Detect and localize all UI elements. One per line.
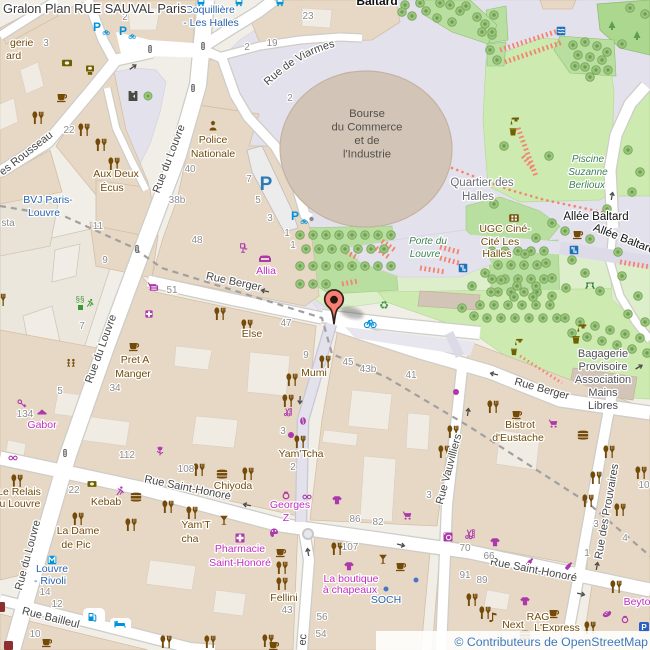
svg-text:Z: Z	[283, 512, 290, 524]
svg-text:82: 82	[372, 517, 384, 528]
svg-text:UGC Ciné-: UGC Ciné-	[479, 223, 531, 235]
svg-text:23: 23	[302, 11, 314, 22]
svg-text:ec: ec	[297, 633, 310, 646]
svg-text:14: 14	[39, 587, 51, 598]
svg-text:5: 5	[255, 195, 261, 206]
svg-text:Chiyoda: Chiyoda	[214, 480, 253, 492]
svg-text:22: 22	[63, 125, 75, 136]
svg-text:Suzanne: Suzanne	[568, 167, 608, 178]
svg-text:Coquillière: Coquillière	[185, 4, 235, 16]
svg-text:Next: Next	[502, 619, 524, 631]
svg-text:P: P	[641, 623, 647, 632]
svg-text:107: 107	[342, 542, 359, 553]
svg-text:3: 3	[267, 213, 273, 224]
svg-text:45: 45	[342, 357, 354, 368]
svg-text:Saint-Honoré: Saint-Honoré	[209, 557, 271, 569]
svg-text:Manger: Manger	[115, 368, 151, 380]
svg-text:Bistrot: Bistrot	[505, 419, 535, 431]
svg-text:Else: Else	[242, 328, 263, 340]
svg-text:2: 2	[287, 93, 293, 104]
svg-text:70: 70	[459, 543, 471, 554]
svg-text:- Rivoli: - Rivoli	[34, 575, 66, 587]
svg-text:54: 54	[315, 629, 327, 640]
svg-text:48: 48	[191, 235, 203, 246]
svg-text:86: 86	[349, 514, 361, 525]
svg-text:Libres: Libres	[588, 400, 618, 412]
svg-text:Aux Deux: Aux Deux	[93, 168, 139, 180]
svg-text:108: 108	[178, 464, 195, 475]
svg-text:Yam'Tcha: Yam'Tcha	[279, 448, 324, 460]
svg-text:Association: Association	[575, 374, 631, 386]
svg-text:P: P	[119, 24, 127, 38]
svg-text:47: 47	[280, 318, 292, 329]
svg-text:Quartier des: Quartier des	[450, 177, 514, 189]
svg-text:43: 43	[281, 605, 293, 616]
svg-text:12: 12	[51, 599, 63, 610]
svg-text:Pret A: Pret A	[121, 354, 150, 366]
svg-text:l'Industrie: l'Industrie	[343, 149, 391, 161]
svg-text:cha: cha	[182, 533, 199, 545]
svg-text:Piscine: Piscine	[572, 154, 605, 165]
svg-text:22: 22	[68, 485, 80, 496]
svg-text:Provisoire: Provisoire	[579, 361, 628, 373]
svg-text:Gabor: Gabor	[27, 419, 57, 431]
svg-text:à chapeaux: à chapeaux	[323, 584, 378, 596]
svg-text:Bourse: Bourse	[349, 108, 385, 120]
svg-text:40: 40	[184, 164, 196, 175]
svg-text:1: 1	[284, 228, 290, 239]
svg-text:Louvre: Louvre	[410, 249, 441, 260]
svg-text:Bagagerie: Bagagerie	[578, 348, 628, 360]
svg-text:sta: sta	[1, 218, 15, 229]
svg-text:3: 3	[593, 519, 599, 530]
svg-text:Porte du: Porte du	[409, 236, 447, 247]
svg-text:Halles: Halles	[482, 248, 511, 260]
svg-text:1: 1	[290, 240, 296, 251]
svg-text:de Pic: de Pic	[61, 539, 90, 551]
svg-text:Pharmacie: Pharmacie	[215, 543, 265, 555]
svg-text:Yam'T: Yam'T	[181, 519, 211, 531]
svg-text:P: P	[93, 20, 101, 34]
svg-text:38b: 38b	[169, 195, 186, 206]
svg-text:7: 7	[79, 321, 85, 332]
svg-text:Baltard: Baltard	[356, 0, 397, 8]
svg-text:Écus: Écus	[100, 181, 123, 194]
svg-text:9: 9	[102, 255, 108, 266]
svg-text:Allia: Allia	[256, 265, 276, 277]
svg-text:Nationale: Nationale	[191, 148, 236, 160]
svg-text:Beyto: Beyto	[624, 596, 650, 608]
svg-text:et de: et de	[354, 135, 379, 147]
svg-text:Fellini: Fellini	[270, 592, 297, 604]
svg-text:ard: ard	[6, 50, 21, 62]
svg-text:3: 3	[280, 426, 286, 437]
svg-text:- Les Halles: - Les Halles	[183, 17, 238, 29]
svg-text:P: P	[291, 209, 299, 223]
svg-text:5: 5	[57, 386, 63, 397]
svg-text:4: 4	[622, 533, 628, 544]
svg-text:Berlioux: Berlioux	[569, 180, 606, 191]
svg-text:7: 7	[246, 174, 252, 185]
svg-text:2: 2	[244, 42, 250, 53]
svg-text:19: 19	[266, 38, 278, 49]
svg-text:Louvre: Louvre	[28, 207, 60, 219]
svg-text:Police: Police	[199, 134, 228, 146]
svg-text:112: 112	[119, 450, 135, 461]
svg-text:56: 56	[316, 612, 328, 623]
svg-text:♻: ♻	[379, 300, 389, 312]
svg-text:10: 10	[29, 629, 41, 640]
svg-text:1: 1	[584, 548, 590, 559]
svg-text:2: 2	[290, 462, 296, 473]
svg-text:La Dame: La Dame	[57, 525, 100, 537]
svg-text:du Louvre: du Louvre	[0, 498, 41, 510]
svg-text:34: 34	[109, 383, 121, 394]
svg-text:Mains: Mains	[588, 387, 618, 399]
svg-text:d'Eustache: d'Eustache	[492, 432, 544, 444]
svg-text:43b: 43b	[360, 364, 377, 375]
svg-text:Georges: Georges	[270, 499, 310, 511]
svg-text:§§: §§	[76, 295, 85, 304]
svg-text:51: 51	[166, 285, 178, 296]
svg-text:Halles: Halles	[462, 191, 494, 203]
svg-text:3: 3	[426, 490, 432, 501]
svg-text:10: 10	[638, 480, 650, 491]
svg-text:Gralon Plan RUE SAUVAL Paris: Gralon Plan RUE SAUVAL Paris	[3, 1, 187, 16]
svg-text:BVJ Paris-: BVJ Paris-	[23, 194, 73, 206]
svg-text:P: P	[260, 174, 273, 195]
svg-text:41: 41	[405, 370, 417, 381]
svg-text:Cité Les: Cité Les	[481, 236, 520, 248]
svg-text:Mumi: Mumi	[301, 367, 327, 379]
svg-text:du Commerce: du Commerce	[332, 122, 403, 134]
svg-text:89: 89	[476, 575, 488, 586]
svg-text:11: 11	[93, 221, 104, 232]
svg-text:SOCH: SOCH	[371, 594, 401, 606]
svg-text:© Contributeurs de OpenStreetM: © Contributeurs de OpenStreetMap	[454, 635, 648, 649]
svg-text:9: 9	[303, 350, 309, 361]
svg-text:3: 3	[43, 38, 49, 49]
svg-text:Kebab: Kebab	[91, 496, 122, 508]
svg-text:Le Relais: Le Relais	[0, 486, 41, 498]
svg-text:66: 66	[483, 551, 495, 562]
svg-text:gerie: gerie	[10, 37, 34, 49]
svg-text:Louvre: Louvre	[36, 563, 68, 575]
svg-text:91: 91	[459, 570, 471, 581]
